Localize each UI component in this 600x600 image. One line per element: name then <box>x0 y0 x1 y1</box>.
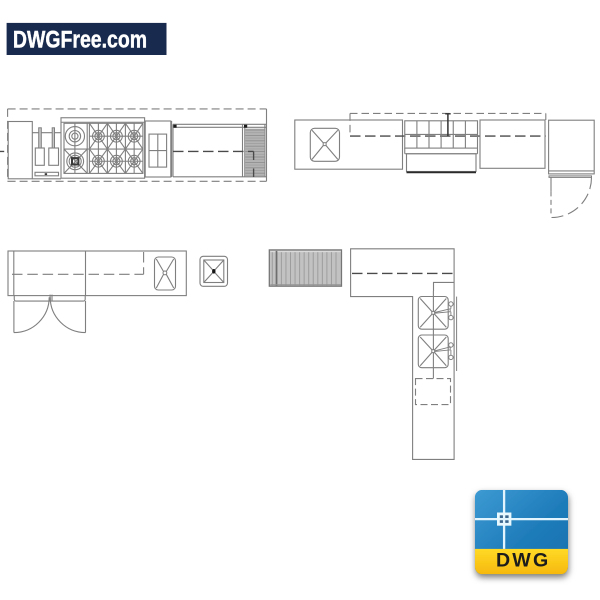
svg-text:DWG: DWG <box>496 550 550 572</box>
svg-text:DWGFree.com: DWGFree.com <box>13 27 147 54</box>
